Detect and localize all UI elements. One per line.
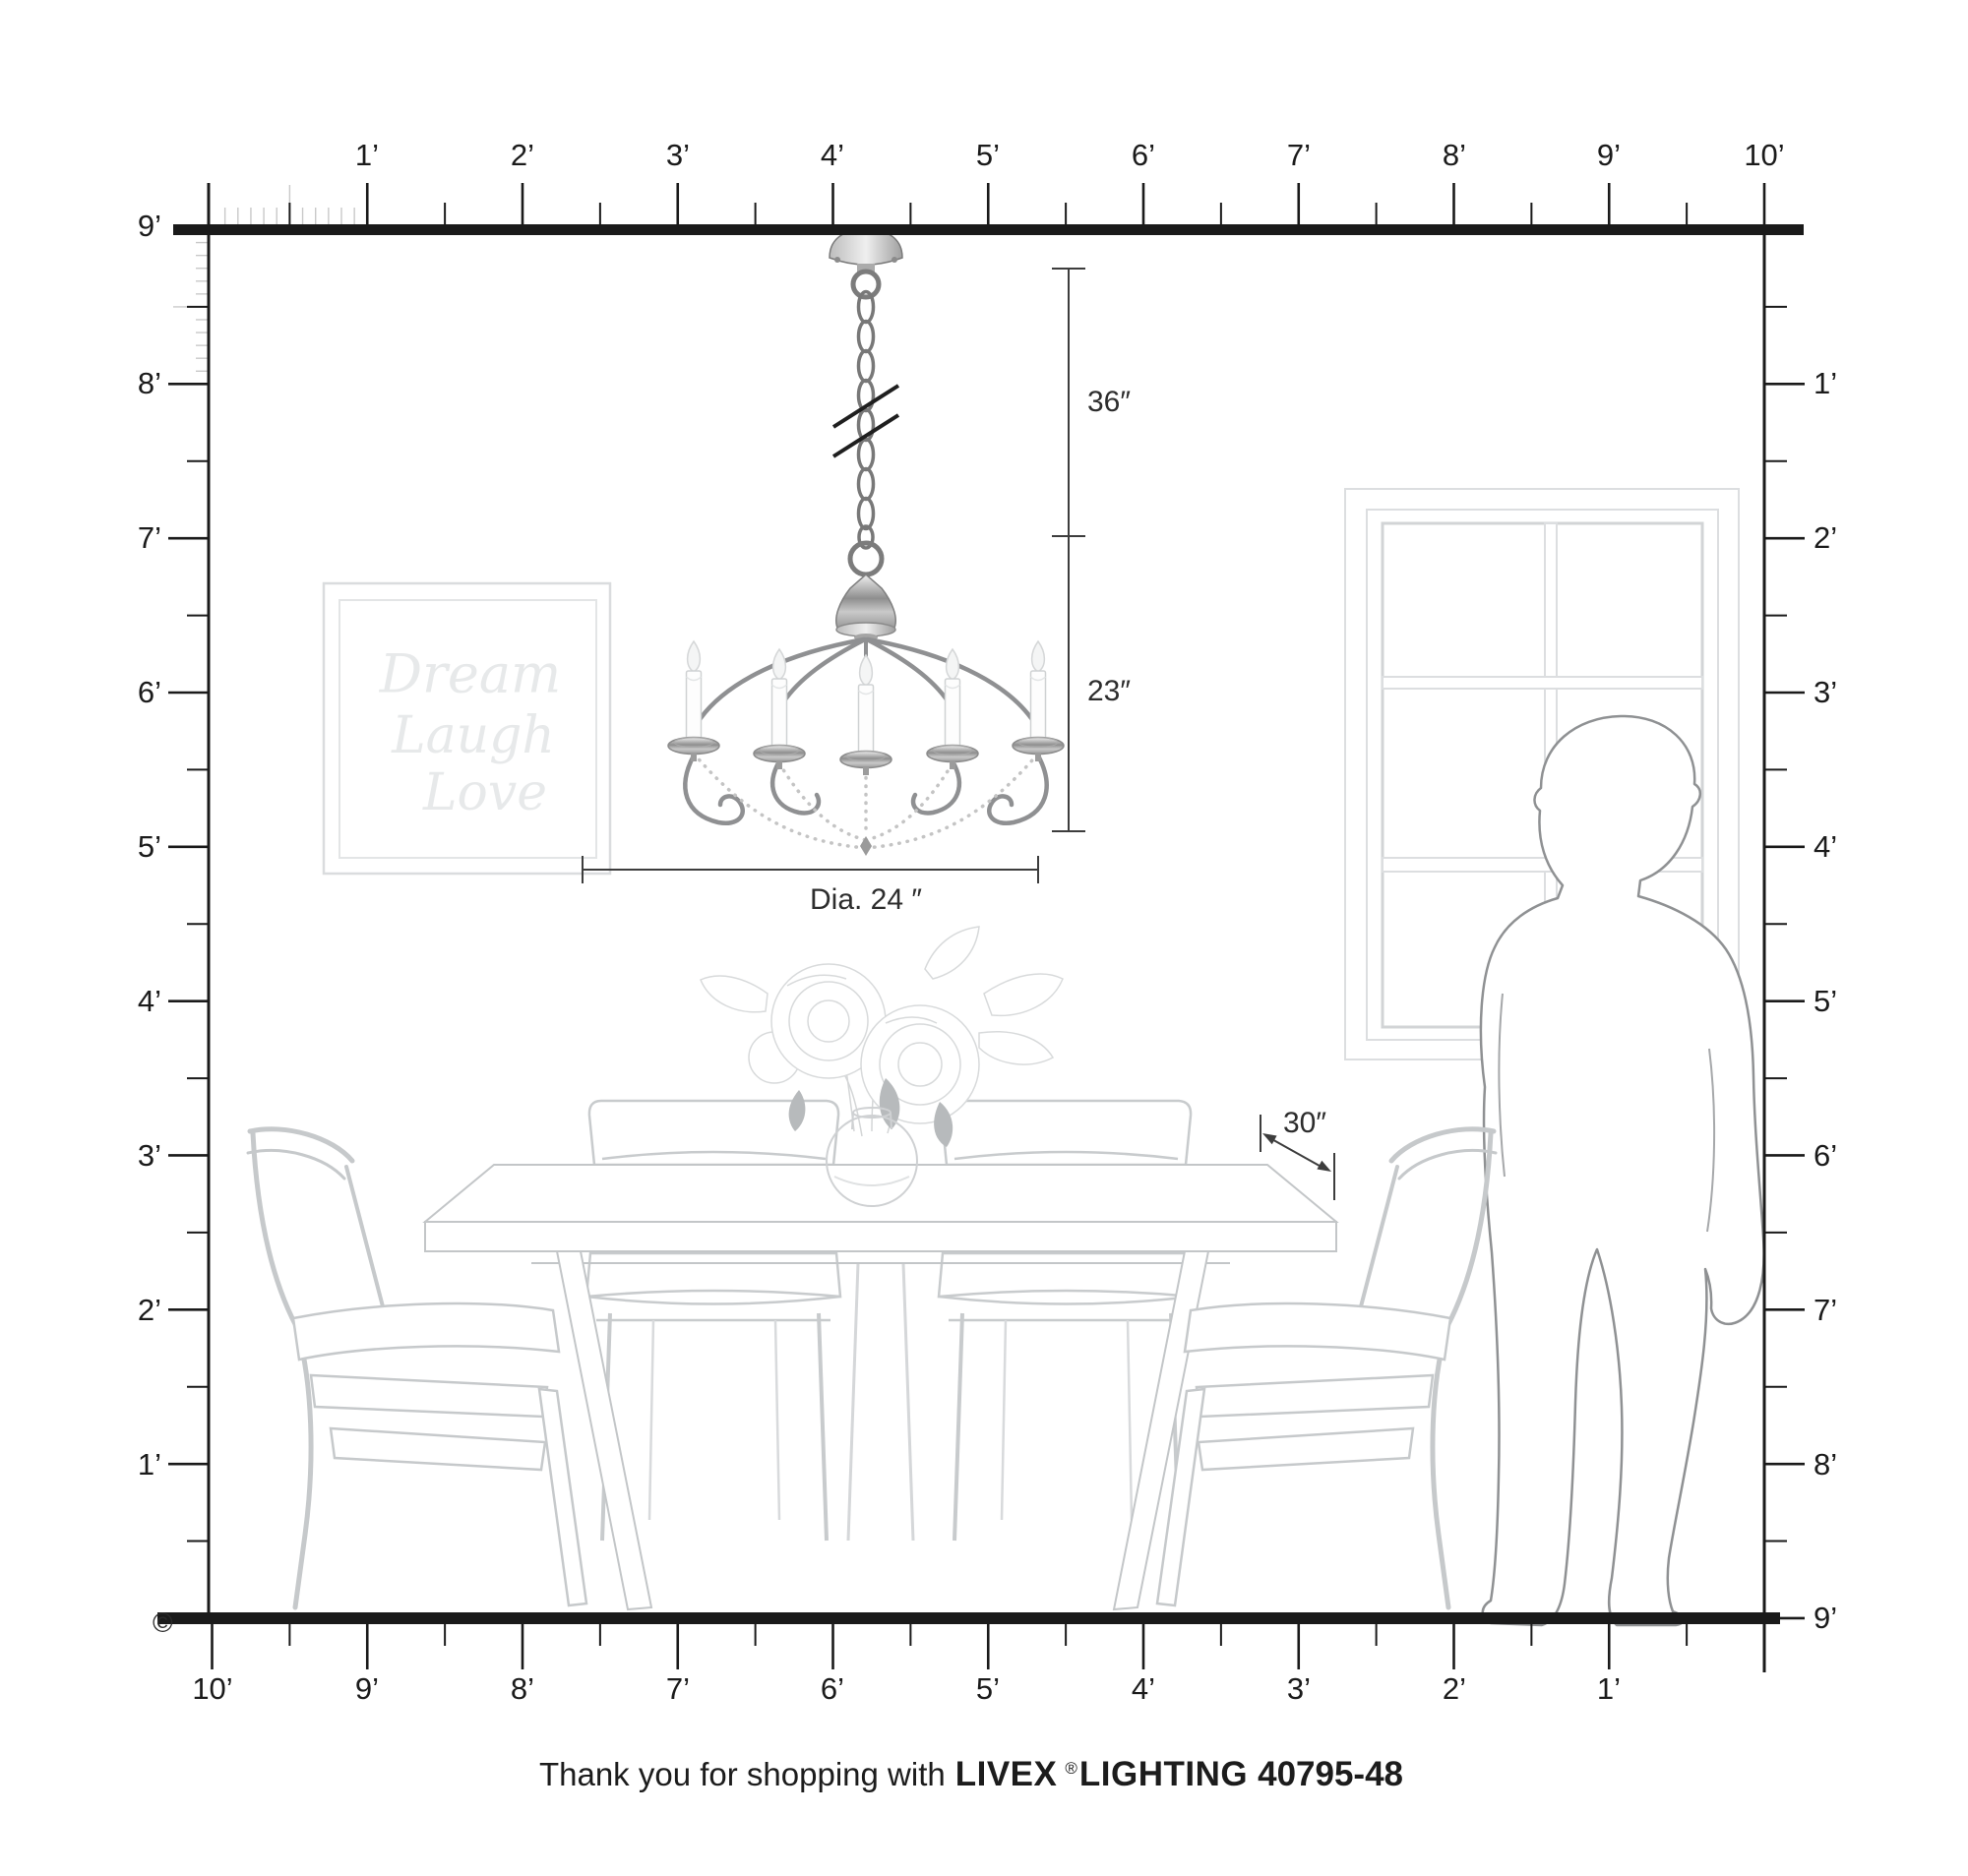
hanging-chain xyxy=(859,292,874,549)
ruler-label: 7’ xyxy=(1287,138,1311,173)
table-back-leg xyxy=(903,1263,913,1541)
ruler-label: 6’ xyxy=(1814,1138,1837,1174)
table-back-leg xyxy=(848,1263,858,1541)
table-depth-label: 30″ xyxy=(1283,1107,1326,1140)
candle-light xyxy=(668,641,719,761)
cone-finial xyxy=(836,575,895,628)
ruler-label: 5’ xyxy=(1814,984,1837,1019)
fixture-diameter-label: Dia. 24 ″ xyxy=(810,883,922,917)
chain-break-mark xyxy=(833,386,898,456)
ruler-label: 6’ xyxy=(1132,138,1155,173)
candle-light-center xyxy=(840,655,892,775)
ruler-label: 8’ xyxy=(138,366,161,401)
right-ruler-line xyxy=(1763,224,1766,1672)
table-apron xyxy=(425,1222,1336,1251)
ruler-label: 4’ xyxy=(1814,829,1837,865)
ruler-label: 7’ xyxy=(138,520,161,556)
ruler-label: 6’ xyxy=(138,675,161,710)
chandelier-illustration xyxy=(668,229,1064,856)
candle-light xyxy=(927,649,978,769)
footer-thanks: Thank you for shopping with xyxy=(539,1756,946,1792)
footer-product-line: LIGHTING xyxy=(1079,1755,1248,1793)
ruler-label: 9’ xyxy=(138,209,161,244)
footer-model-number: 40795-48 xyxy=(1258,1755,1403,1793)
table-top xyxy=(425,1165,1336,1222)
ruler-label: 2’ xyxy=(1443,1671,1466,1707)
wall-art-word: Laugh xyxy=(392,706,555,765)
footer-brand: LIVEX xyxy=(955,1755,1058,1793)
ruler-label: 2’ xyxy=(1814,520,1837,556)
left-ruler-line xyxy=(208,183,211,1618)
registered-trademark-icon: ® xyxy=(1065,1759,1077,1778)
chain-length-label: 36″ xyxy=(1087,386,1131,419)
candle-light xyxy=(754,649,805,769)
ceiling-ruler-line xyxy=(173,224,1804,235)
ruler-label: 1’ xyxy=(1597,1671,1621,1707)
room-scale-illustration xyxy=(0,0,1968,1876)
ruler-label: 9’ xyxy=(1597,138,1621,173)
copyright-symbol: © xyxy=(153,1607,173,1639)
ruler-label: 1’ xyxy=(1814,366,1837,401)
diameter-dimension xyxy=(583,856,1038,883)
ruler-label: 3’ xyxy=(1287,1671,1311,1707)
footer-text: Thank you for shopping withLIVEX®LIGHTIN… xyxy=(539,1755,1403,1794)
ruler-label: 3’ xyxy=(138,1138,161,1174)
floor-ruler-line xyxy=(157,1612,1780,1624)
ruler-label: 2’ xyxy=(138,1293,161,1328)
ruler-label: 10’ xyxy=(192,1671,232,1707)
ruler-inch-ticks xyxy=(173,185,354,371)
ruler-label: 3’ xyxy=(666,138,690,173)
ruler-label: 3’ xyxy=(1814,675,1837,710)
ruler-label: 8’ xyxy=(511,1671,534,1707)
ruler-label: 5’ xyxy=(138,829,161,865)
ruler-label: 6’ xyxy=(821,1671,844,1707)
fixture-height-label: 23″ xyxy=(1087,675,1131,708)
ruler-label: 5’ xyxy=(976,138,1000,173)
ruler-label: 4’ xyxy=(821,138,844,173)
ruler-label: 1’ xyxy=(355,138,379,173)
bottom-finial xyxy=(860,836,872,856)
window-rail-upper xyxy=(1383,677,1702,689)
ruler-label: 9’ xyxy=(355,1671,379,1707)
ruler-label: 10’ xyxy=(1744,138,1784,173)
wall-art-word: Dream xyxy=(380,643,561,705)
ruler-label: 8’ xyxy=(1443,138,1466,173)
ruler-label: 4’ xyxy=(1132,1671,1155,1707)
ruler-label: 7’ xyxy=(1814,1293,1837,1328)
ruler-label: 2’ xyxy=(511,138,534,173)
scale-diagram-page: 1’ 2’ 3’ 4’ 5’ 6’ 7’ 8’ 9’ 10’ 10’ 9’ 8’… xyxy=(0,0,1968,1876)
ruler-label: 1’ xyxy=(138,1447,161,1483)
wall-art-word: Love xyxy=(423,763,547,822)
ruler-label: 8’ xyxy=(1814,1447,1837,1483)
ruler-label: 7’ xyxy=(666,1671,690,1707)
ruler-label: 4’ xyxy=(138,984,161,1019)
candle-light xyxy=(1013,641,1064,761)
ruler-label: 5’ xyxy=(976,1671,1000,1707)
ruler-label: 9’ xyxy=(1814,1601,1837,1636)
